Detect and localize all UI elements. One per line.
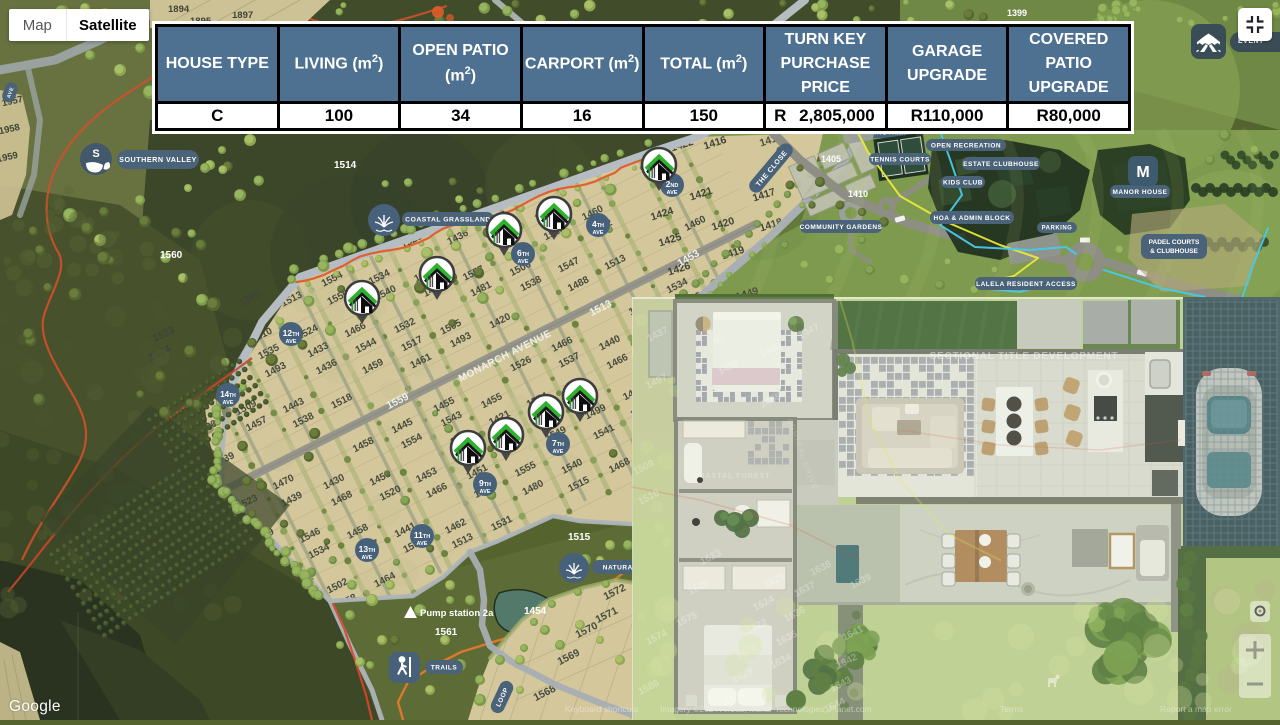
- svg-text:1560: 1560: [160, 250, 183, 261]
- svg-text:AVE: AVE: [223, 400, 234, 406]
- svg-text:OPEN RECREATION: OPEN RECREATION: [931, 142, 1001, 149]
- svg-text:AVE: AVE: [417, 541, 428, 547]
- svg-text:ESTATE CLUBHOUSE: ESTATE CLUBHOUSE: [963, 161, 1039, 168]
- svg-text:KIDS CLUB: KIDS CLUB: [943, 179, 983, 186]
- svg-text:COASTAL GRASSLAND: COASTAL GRASSLAND: [405, 216, 491, 223]
- svg-text:TRAILS: TRAILS: [431, 664, 458, 671]
- svg-text:S: S: [92, 148, 99, 160]
- svg-text:AVE: AVE: [518, 259, 529, 265]
- svg-text:Pump station 2a: Pump station 2a: [420, 608, 494, 619]
- svg-text:1514: 1514: [334, 160, 357, 171]
- svg-text:1410: 1410: [848, 189, 868, 199]
- svg-text:Imagery ©2024 Airbus, Maxar Te: Imagery ©2024 Airbus, Maxar Technologies…: [660, 704, 872, 714]
- svg-text:HOA & ADMIN BLOCK: HOA & ADMIN BLOCK: [934, 215, 1011, 222]
- svg-text:1561: 1561: [435, 627, 458, 638]
- svg-text:MANOR HOUSE: MANOR HOUSE: [1113, 189, 1168, 196]
- svg-text:PADEL COURTS: PADEL COURTS: [1149, 239, 1200, 246]
- svg-text:AVE: AVE: [593, 230, 604, 236]
- svg-text:1515: 1515: [568, 532, 591, 543]
- svg-text:AVE: AVE: [286, 339, 297, 345]
- svg-text:AVE: AVE: [480, 489, 491, 495]
- svg-text:1454: 1454: [524, 606, 547, 617]
- svg-text:& CLUBHOUSE: & CLUBHOUSE: [1150, 248, 1198, 255]
- svg-text:M: M: [1136, 164, 1149, 181]
- svg-text:Report a map error: Report a map error: [1160, 704, 1232, 714]
- svg-text:COMMUNITY GARDENS: COMMUNITY GARDENS: [800, 224, 883, 231]
- svg-text:LALELA RESIDENT ACCESS: LALELA RESIDENT ACCESS: [976, 281, 1076, 288]
- svg-text:AVE: AVE: [362, 555, 373, 561]
- svg-text:Terms: Terms: [1000, 704, 1023, 714]
- svg-text:AVE: AVE: [667, 190, 678, 196]
- svg-text:1405: 1405: [821, 154, 841, 164]
- svg-text:TENNIS COURTS: TENNIS COURTS: [870, 156, 930, 163]
- svg-text:Keyboard shortcuts: Keyboard shortcuts: [565, 704, 638, 714]
- svg-text:1399: 1399: [1007, 8, 1027, 18]
- svg-text:SOUTHERN VALLEY: SOUTHERN VALLEY: [119, 155, 197, 164]
- svg-text:AVE: AVE: [553, 449, 564, 455]
- svg-text:PARKING: PARKING: [1042, 226, 1073, 232]
